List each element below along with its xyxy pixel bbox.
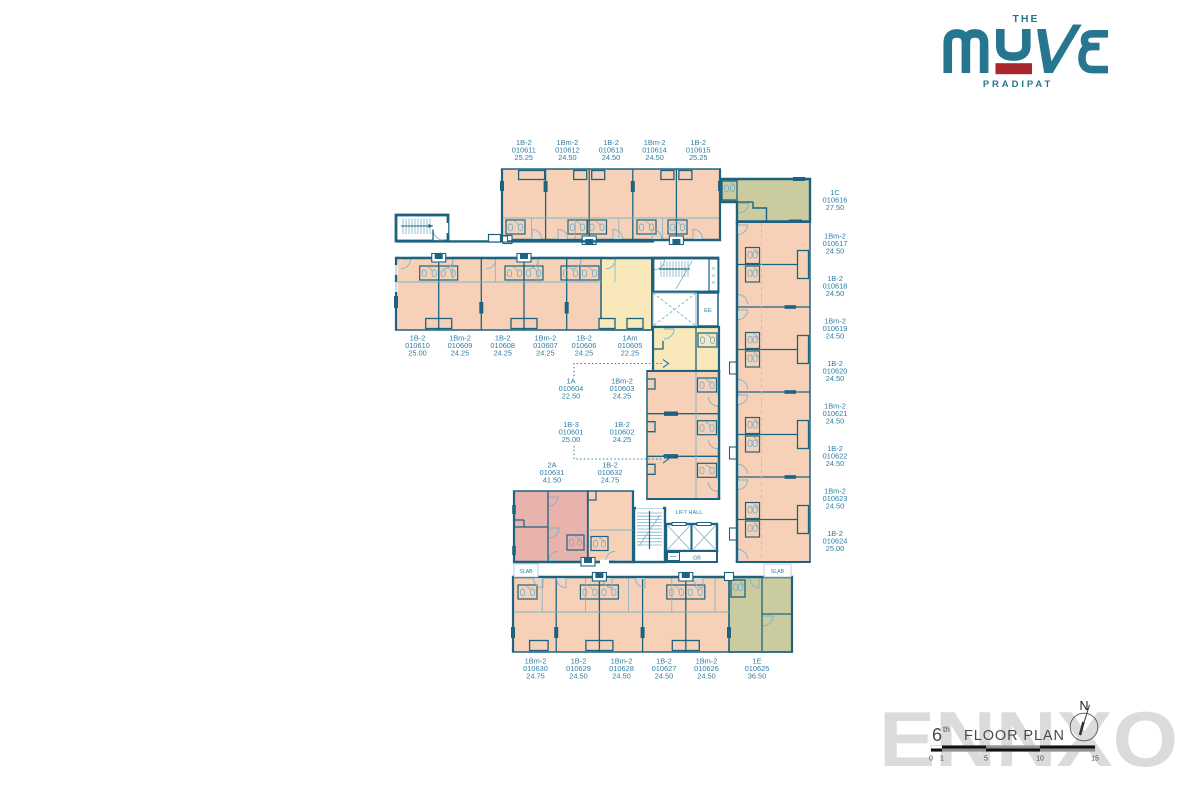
svg-text:1Bm-201061724.50: 1Bm-201061724.50 xyxy=(823,232,848,256)
svg-text:PRADIPAT: PRADIPAT xyxy=(983,79,1053,90)
svg-text:10: 10 xyxy=(1036,756,1044,763)
svg-text:15: 15 xyxy=(1091,756,1099,763)
svg-text:1Bm-201061424.50: 1Bm-201061424.50 xyxy=(642,138,667,162)
svg-text:SLAB: SLAB xyxy=(519,569,533,575)
svg-text:5: 5 xyxy=(984,756,988,763)
svg-text:LIFT HALL: LIFT HALL xyxy=(676,510,703,516)
svg-text:1Bm-201060324.25: 1Bm-201060324.25 xyxy=(610,377,635,401)
svg-text:1Bm-201062824.50: 1Bm-201062824.50 xyxy=(609,657,634,681)
svg-text:1: 1 xyxy=(940,756,944,763)
svg-text:V: V xyxy=(712,280,715,285)
svg-text:1Bm-201061924.50: 1Bm-201061924.50 xyxy=(823,317,848,341)
svg-text:1Bm-201063024.75: 1Bm-201063024.75 xyxy=(523,657,548,681)
svg-text:6: 6 xyxy=(932,725,942,745)
svg-text:GB: GB xyxy=(693,556,701,562)
svg-text:FLOOR PLAN: FLOOR PLAN xyxy=(964,728,1065,744)
svg-text:1Bm-201060924.25: 1Bm-201060924.25 xyxy=(448,334,473,358)
svg-text:1Bm-201062324.50: 1Bm-201062324.50 xyxy=(823,487,848,511)
svg-text:th: th xyxy=(943,725,950,734)
svg-text:1Bm-201062124.50: 1Bm-201062124.50 xyxy=(823,402,848,426)
svg-text:THE: THE xyxy=(1013,13,1040,25)
svg-text:0: 0 xyxy=(929,756,933,763)
svg-text:1Bm-201061224.50: 1Bm-201061224.50 xyxy=(555,138,580,162)
svg-text:SLAB: SLAB xyxy=(771,569,785,575)
svg-text:V: V xyxy=(712,266,715,271)
svg-text:1Bm-201062624.50: 1Bm-201062624.50 xyxy=(694,657,719,681)
svg-text:A: A xyxy=(712,273,715,278)
svg-text:1Bm-201060724.25: 1Bm-201060724.25 xyxy=(533,334,558,358)
svg-text:EE: EE xyxy=(704,308,712,314)
